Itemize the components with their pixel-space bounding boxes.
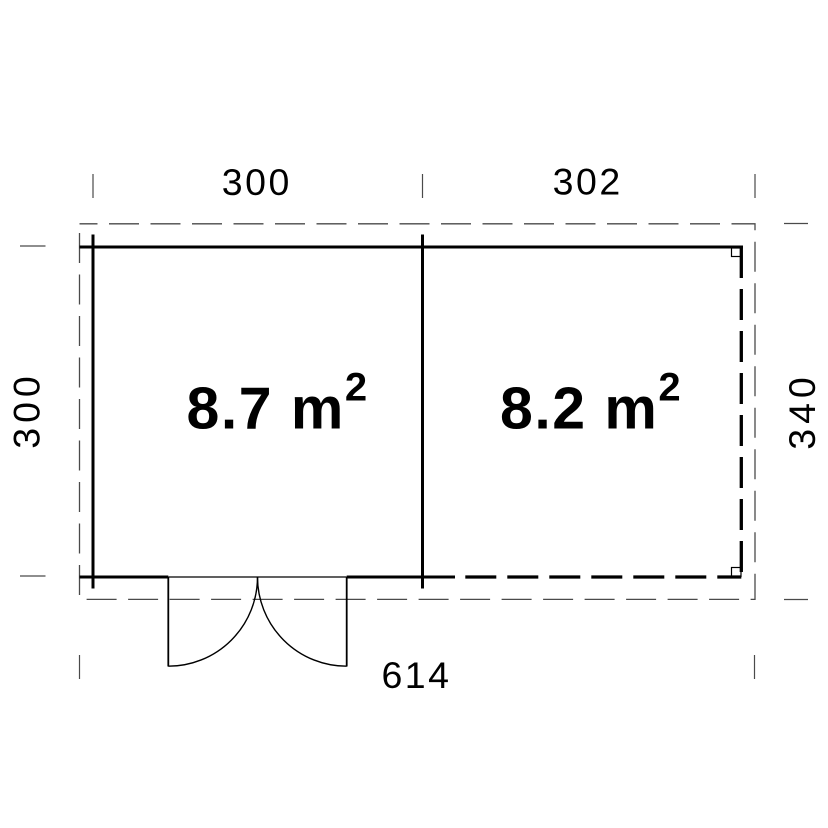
svg-text:300: 300 (222, 161, 292, 203)
svg-text:340: 340 (781, 372, 823, 450)
svg-text:8.7 m2: 8.7 m2 (187, 366, 369, 442)
svg-text:302: 302 (553, 161, 623, 203)
svg-text:300: 300 (6, 371, 48, 449)
svg-text:614: 614 (381, 654, 451, 696)
svg-text:8.2 m2: 8.2 m2 (500, 365, 682, 441)
